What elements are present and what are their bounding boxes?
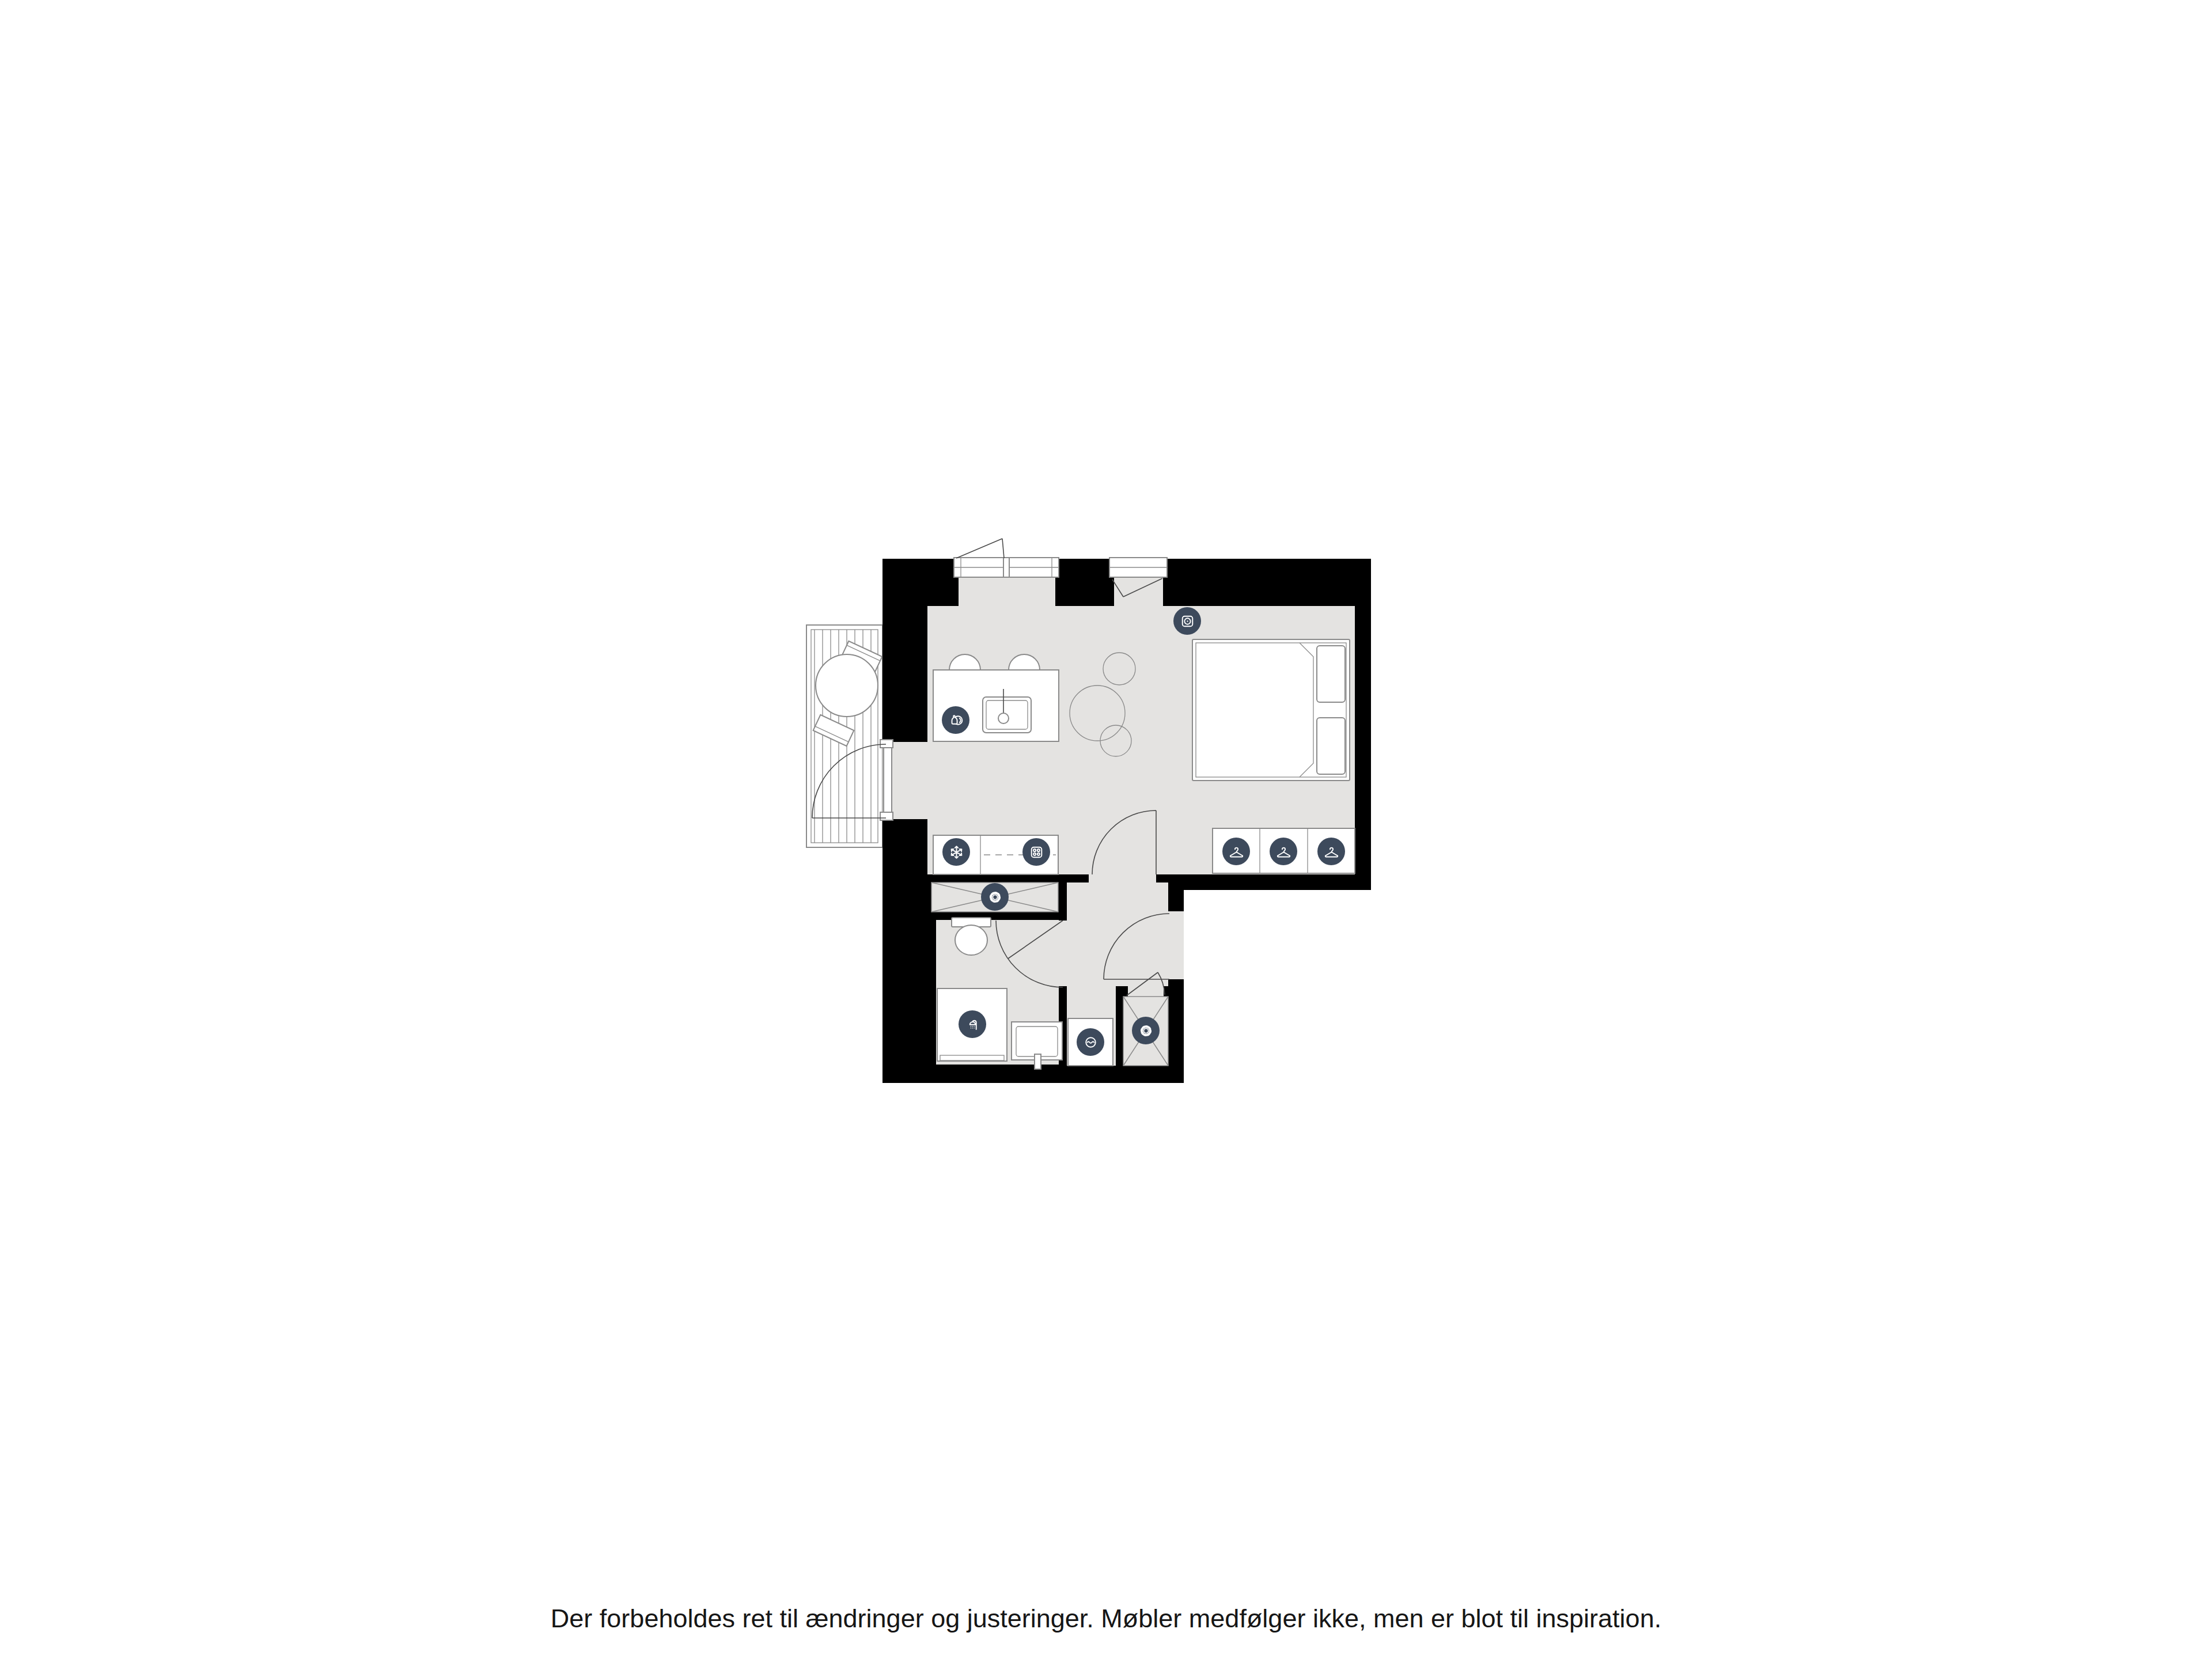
ventilation-unit-icon (981, 883, 1009, 911)
shower-icon (959, 1010, 986, 1038)
balcony (806, 625, 882, 847)
wardrobe-2-icon (1270, 838, 1297, 865)
dishwasher-icon (942, 706, 969, 734)
wardrobe-1-icon (1222, 838, 1250, 865)
power-socket-icon (1173, 607, 1201, 635)
window-1 (954, 539, 1059, 577)
disclaimer-text: Der forbeholdes ret til ændringer og jus… (0, 1603, 2212, 1635)
balcony-table (816, 654, 878, 717)
refrigerator-icon (942, 838, 970, 866)
double-bed (1192, 639, 1350, 781)
stove-icon (1022, 838, 1050, 866)
washing-machine-icon (1077, 1028, 1104, 1056)
living-door-opening (1089, 872, 1156, 884)
bathroom-door-opening (1058, 921, 1068, 986)
floor-plan-svg (801, 533, 1382, 1092)
shaft-door-opening (1128, 986, 1164, 997)
basin-tap (1035, 1054, 1041, 1069)
technical-shaft-icon (1132, 1017, 1160, 1044)
window-1-swing (956, 539, 1004, 558)
pillow-1 (1317, 646, 1345, 702)
entrance-opening (1168, 911, 1184, 979)
wardrobe-3-icon (1317, 838, 1345, 865)
floorplan-page: Der forbeholdes ret til ændringer og jus… (0, 0, 2212, 1659)
hallway-floor (1067, 882, 1168, 986)
pillow-2 (1317, 718, 1345, 774)
window-1-recess (959, 577, 1055, 606)
